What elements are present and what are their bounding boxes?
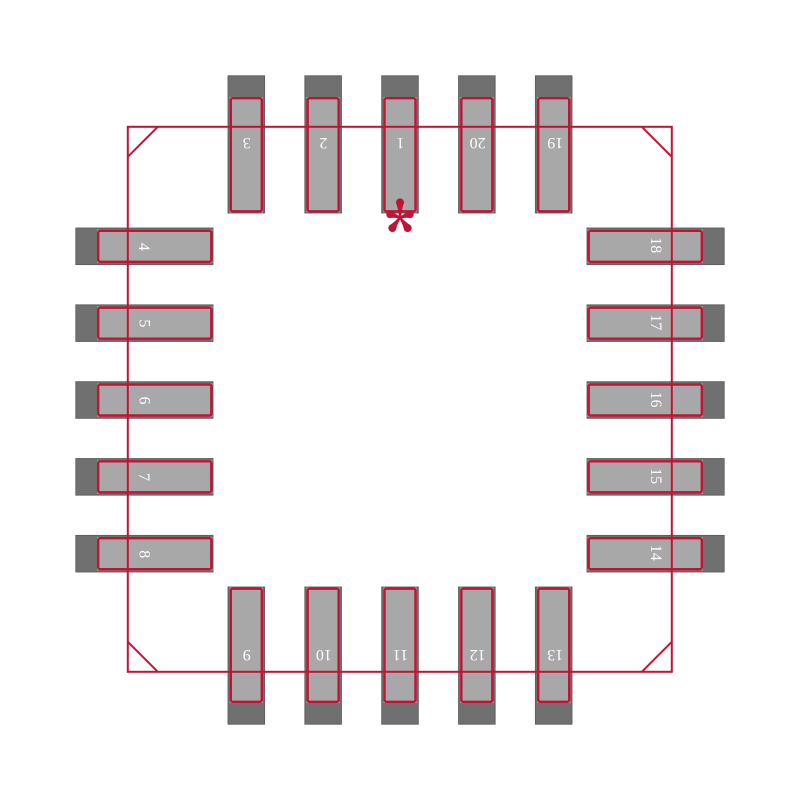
svg-text:1: 1 xyxy=(397,134,405,151)
svg-text:7: 7 xyxy=(135,473,152,481)
svg-text:8: 8 xyxy=(135,550,152,558)
svg-text:20: 20 xyxy=(470,134,486,151)
svg-text:13: 13 xyxy=(547,646,563,663)
svg-text:6: 6 xyxy=(135,397,152,405)
svg-text:9: 9 xyxy=(243,646,251,663)
svg-text:15: 15 xyxy=(647,468,664,484)
svg-text:17: 17 xyxy=(647,314,664,330)
svg-text:10: 10 xyxy=(316,646,332,663)
svg-text:16: 16 xyxy=(647,392,664,408)
svg-text:19: 19 xyxy=(547,134,563,151)
svg-text:18: 18 xyxy=(647,237,664,253)
svg-text:2: 2 xyxy=(319,134,327,151)
svg-text:3: 3 xyxy=(243,134,251,151)
svg-text:5: 5 xyxy=(135,319,152,327)
svg-text:11: 11 xyxy=(393,646,408,663)
svg-text:12: 12 xyxy=(470,646,486,663)
svg-text:14: 14 xyxy=(647,545,664,561)
svg-text:4: 4 xyxy=(135,243,152,251)
